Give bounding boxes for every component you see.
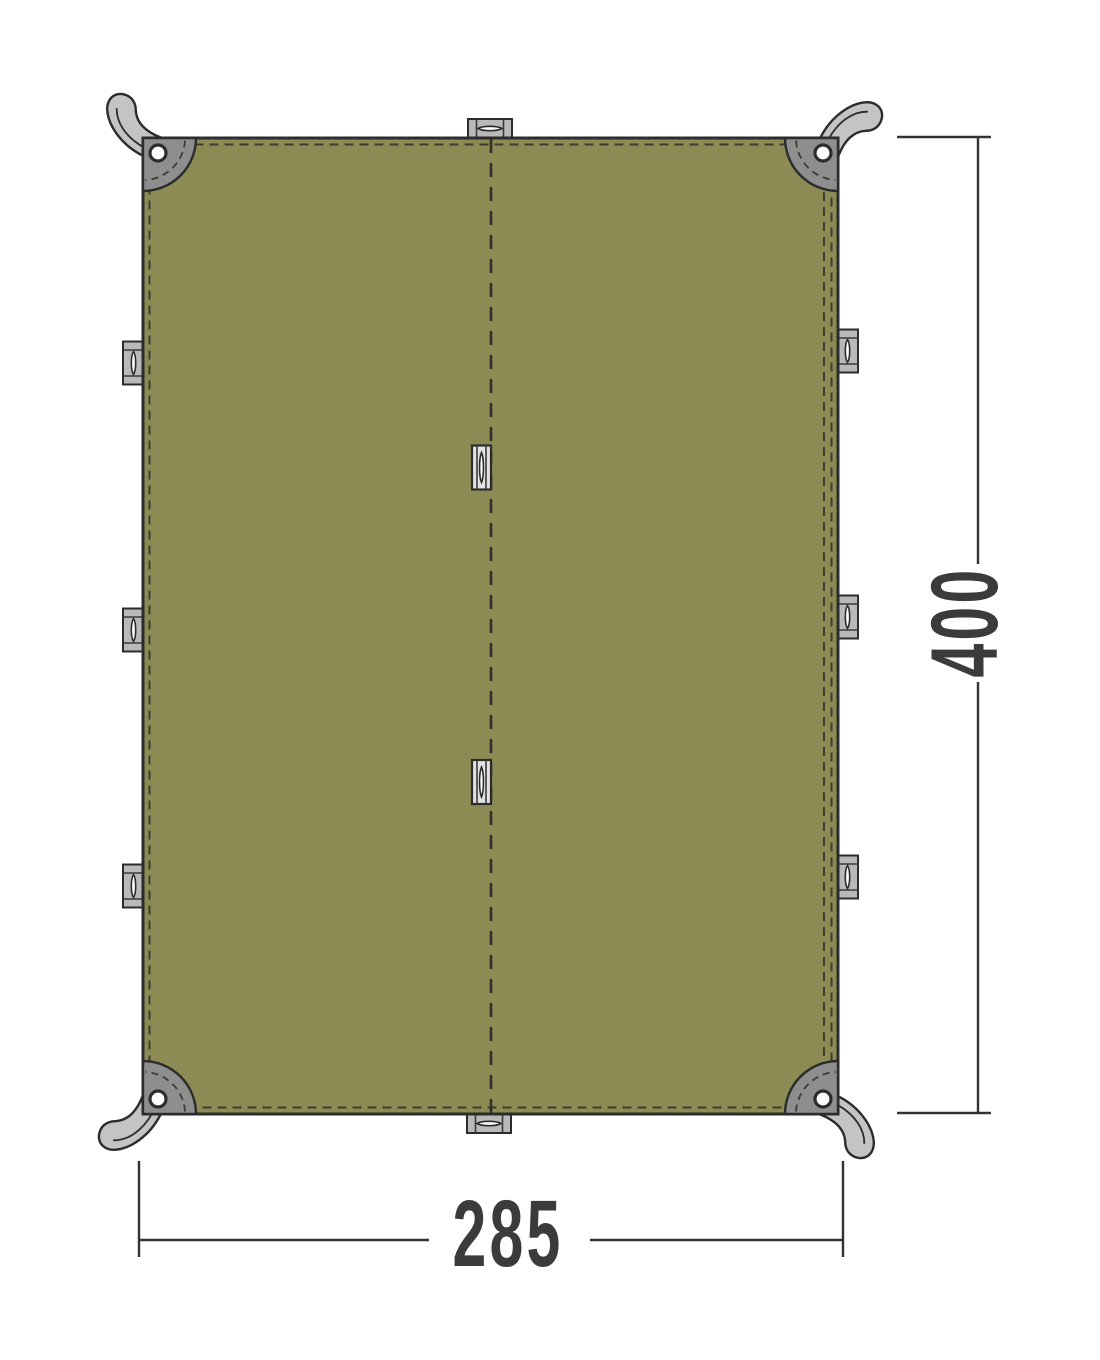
tarp-dimension-diagram: 400 285 [0, 0, 1100, 1360]
edge-loop-top-center [468, 119, 512, 138]
grommet-bottom-left [150, 1091, 166, 1107]
height-label: 400 [911, 566, 1017, 677]
width-dimension: 285 [139, 1161, 843, 1286]
seam-loop-1 [472, 446, 491, 490]
edge-loop-left-1 [123, 342, 144, 385]
edge-loop-left-2 [123, 609, 144, 652]
grommet-bottom-right [815, 1091, 831, 1107]
edge-loop-right-3 [837, 856, 858, 899]
seam-loop-2 [472, 760, 491, 804]
edge-loop-right-2 [837, 596, 858, 639]
width-label: 285 [452, 1180, 563, 1286]
height-dimension: 400 [897, 137, 1017, 1113]
diagram-canvas: 400 285 [0, 0, 1100, 1360]
edge-loop-left-3 [123, 865, 144, 908]
edge-loop-right-1 [837, 330, 858, 373]
grommet-top-right [815, 145, 831, 161]
edge-loop-bottom-center [467, 1114, 511, 1133]
grommet-top-left [150, 145, 166, 161]
